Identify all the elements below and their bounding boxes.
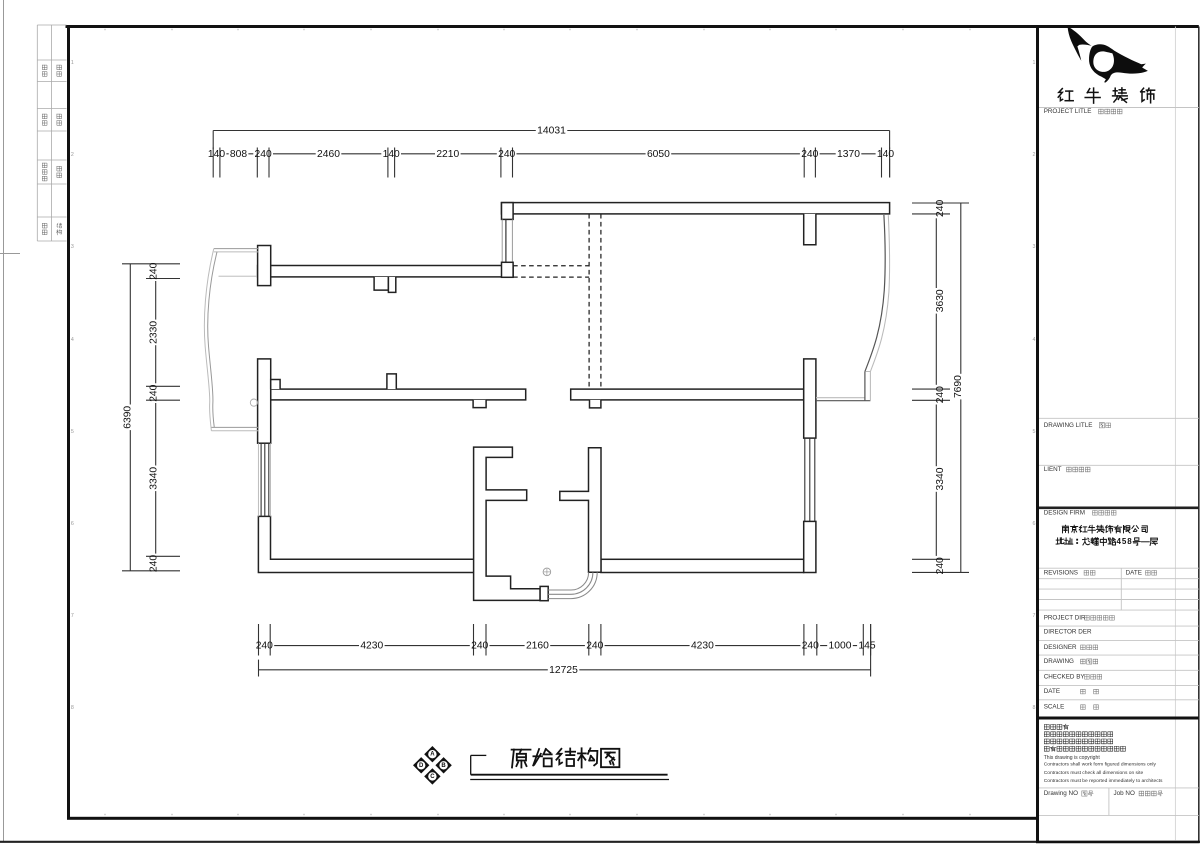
svg-text:240: 240: [586, 641, 603, 652]
svg-text:240: 240: [935, 557, 946, 574]
svg-text:1370: 1370: [837, 149, 860, 160]
svg-text:2: 2: [71, 152, 74, 158]
svg-text:240: 240: [498, 149, 515, 160]
svg-text:240: 240: [255, 149, 272, 160]
svg-text:Job NO: Job NO: [1114, 790, 1135, 797]
svg-text:3: 3: [1033, 244, 1036, 250]
svg-text:C: C: [430, 774, 435, 780]
svg-text:2: 2: [1033, 152, 1036, 158]
svg-text:3340: 3340: [149, 467, 160, 490]
svg-text:3340: 3340: [935, 467, 946, 490]
svg-text:140: 140: [877, 149, 894, 160]
svg-text:7: 7: [71, 613, 74, 619]
svg-text:1000: 1000: [829, 641, 852, 652]
svg-text:8: 8: [1033, 705, 1036, 711]
svg-text:5: 5: [1122, 537, 1127, 546]
svg-text:6050: 6050: [647, 149, 670, 160]
svg-text:4: 4: [1033, 337, 1036, 343]
svg-text:12725: 12725: [549, 665, 578, 676]
svg-text:2160: 2160: [526, 641, 549, 652]
svg-text:240: 240: [802, 641, 819, 652]
svg-text:240: 240: [801, 149, 818, 160]
svg-text:6390: 6390: [123, 406, 134, 429]
svg-text:7: 7: [1033, 613, 1036, 619]
svg-text:B: B: [441, 763, 446, 769]
svg-text:DRAWING: DRAWING: [1044, 658, 1074, 665]
svg-text:A: A: [430, 752, 435, 758]
svg-text:This drawing is copyright: This drawing is copyright: [1044, 755, 1101, 761]
svg-text:7690: 7690: [953, 375, 964, 398]
svg-text:4230: 4230: [360, 641, 383, 652]
svg-text:4230: 4230: [691, 641, 714, 652]
svg-text:140: 140: [383, 149, 400, 160]
svg-text:240: 240: [149, 555, 160, 572]
svg-text:1: 1: [71, 60, 74, 66]
svg-text:REVISIONS: REVISIONS: [1044, 569, 1078, 576]
svg-text:14031: 14031: [537, 126, 566, 137]
svg-text:5: 5: [71, 429, 74, 435]
svg-text:6: 6: [1033, 521, 1036, 527]
svg-text:1: 1: [1033, 60, 1036, 66]
svg-text:2330: 2330: [149, 321, 160, 344]
svg-text:240: 240: [471, 641, 488, 652]
svg-text:Drawing NO: Drawing NO: [1044, 790, 1078, 797]
svg-text:Contractors must check all dim: Contractors must check all dimensions on…: [1044, 770, 1144, 776]
svg-text:3: 3: [71, 244, 74, 250]
svg-text:PROJECT LITLE: PROJECT LITLE: [1044, 108, 1092, 115]
svg-text:2460: 2460: [317, 149, 340, 160]
svg-text:DIRECTOR DER: DIRECTOR DER: [1044, 629, 1092, 636]
svg-text:8: 8: [1127, 537, 1132, 546]
svg-text:240: 240: [149, 384, 160, 401]
svg-text:D: D: [419, 763, 424, 769]
svg-text:DATE: DATE: [1044, 688, 1060, 695]
svg-text:Contractors must be reported i: Contractors must be reported immediately…: [1044, 778, 1163, 784]
svg-text:5: 5: [1033, 429, 1036, 435]
svg-text:DRAWING LITLE: DRAWING LITLE: [1044, 422, 1093, 429]
svg-text:2210: 2210: [436, 149, 459, 160]
svg-text:DATE: DATE: [1126, 569, 1142, 576]
svg-text:LIENT: LIENT: [1044, 466, 1062, 473]
svg-text:808: 808: [230, 149, 247, 160]
svg-text:PROJECT DIR: PROJECT DIR: [1044, 614, 1086, 621]
svg-text:240: 240: [256, 641, 273, 652]
svg-text:3630: 3630: [935, 289, 946, 312]
svg-text:DESIGN FIRM: DESIGN FIRM: [1044, 509, 1085, 516]
svg-text:4: 4: [71, 337, 74, 343]
svg-text:8: 8: [71, 705, 74, 711]
svg-text:DESIGNER: DESIGNER: [1044, 644, 1077, 651]
svg-text:Contractors shall work form fi: Contractors shall work form figured dime…: [1044, 761, 1157, 767]
svg-text:240: 240: [149, 262, 160, 279]
svg-text:CHECKED BY: CHECKED BY: [1044, 673, 1086, 680]
svg-text:6: 6: [71, 521, 74, 527]
svg-text:145: 145: [858, 641, 875, 652]
svg-text:240: 240: [935, 200, 946, 217]
svg-text:140: 140: [208, 149, 225, 160]
svg-text:SCALE: SCALE: [1044, 704, 1065, 711]
svg-text:240: 240: [935, 386, 946, 403]
svg-text:4: 4: [1116, 537, 1121, 546]
